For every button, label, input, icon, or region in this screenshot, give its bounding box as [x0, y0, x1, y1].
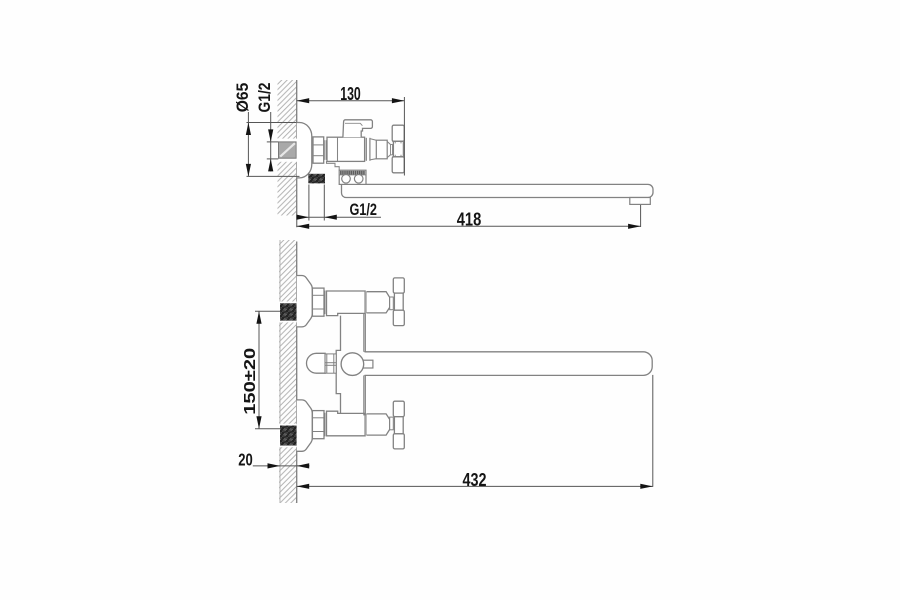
svg-text:20: 20: [238, 449, 253, 469]
svg-text:432: 432: [463, 469, 487, 490]
svg-text:G1/2: G1/2: [255, 83, 274, 113]
svg-text:G1/2: G1/2: [349, 200, 377, 219]
svg-text:130: 130: [340, 83, 361, 104]
svg-text:Ø65: Ø65: [233, 83, 252, 113]
svg-text:418: 418: [457, 209, 482, 230]
svg-text:150±20: 150±20: [242, 348, 259, 415]
